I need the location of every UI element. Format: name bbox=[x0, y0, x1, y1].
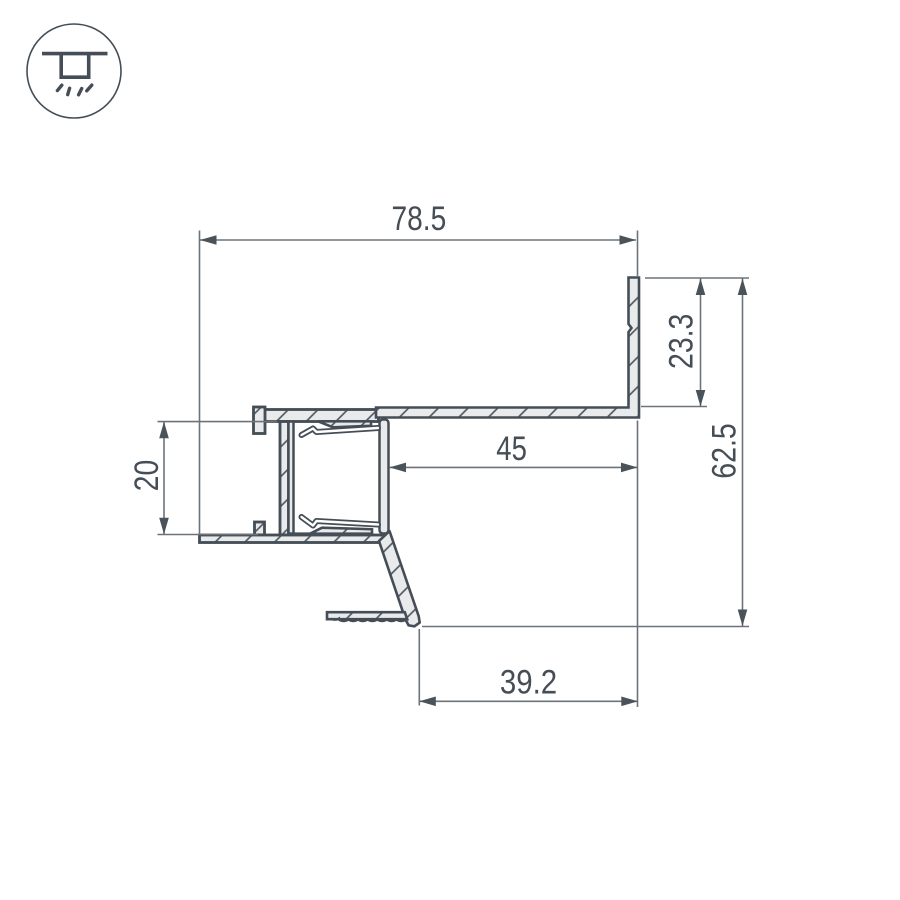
svg-text:20: 20 bbox=[128, 460, 166, 491]
svg-text:78.5: 78.5 bbox=[392, 200, 447, 238]
svg-text:45: 45 bbox=[496, 430, 527, 468]
svg-text:39.2: 39.2 bbox=[500, 664, 557, 702]
svg-text:62.5: 62.5 bbox=[706, 423, 744, 479]
svg-text:23.3: 23.3 bbox=[663, 314, 701, 369]
